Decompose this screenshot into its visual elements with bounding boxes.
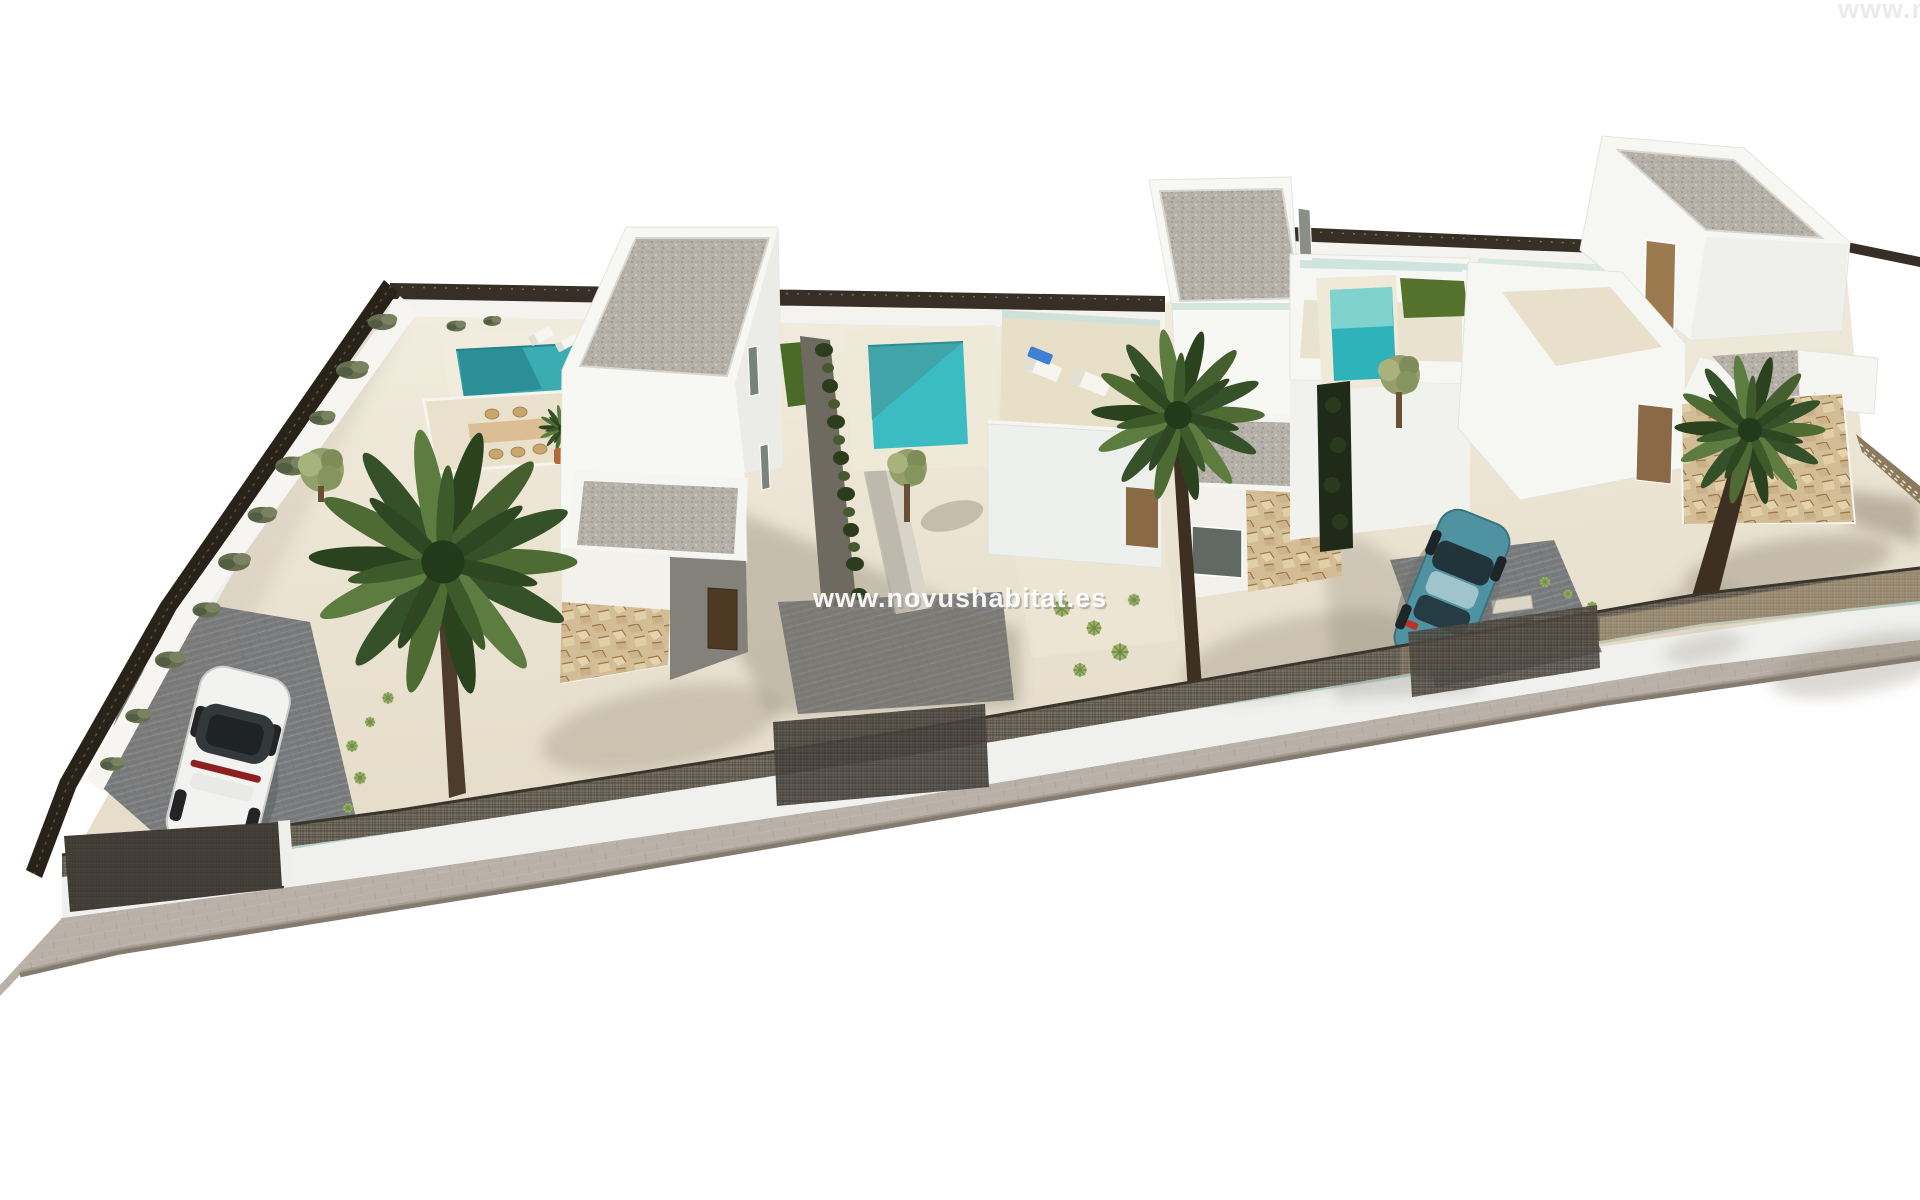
svg-text:www.novushabitat.es: www.novushabitat.es (812, 583, 1107, 613)
svg-text:www.novushabitat.es: www.novushabitat.es (1837, 0, 1920, 24)
